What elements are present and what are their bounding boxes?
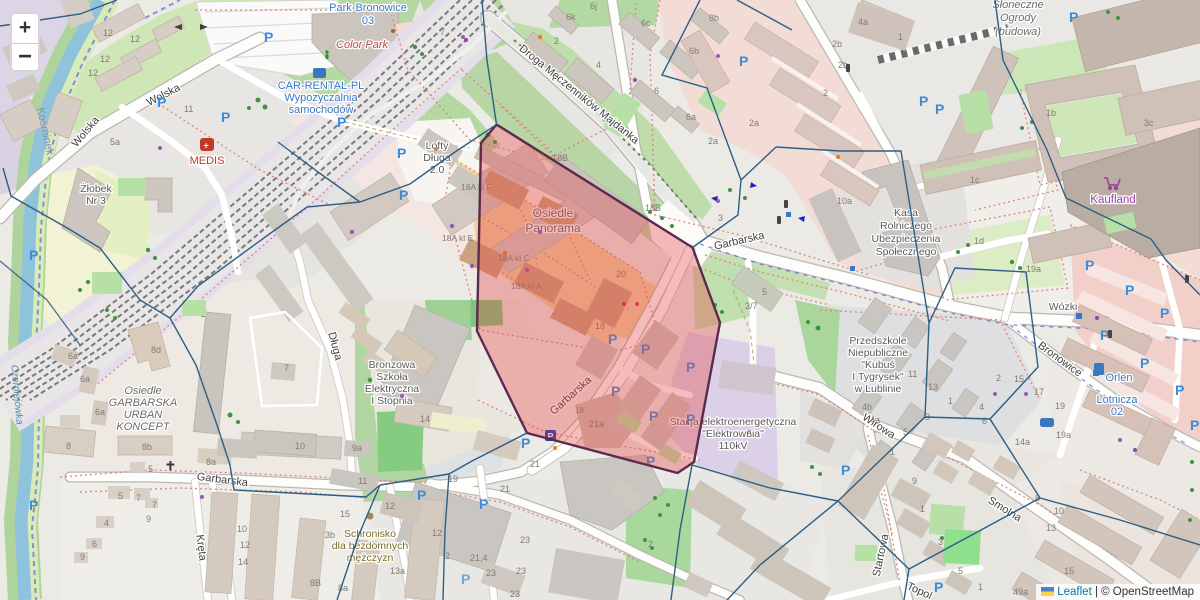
svg-text:3/7: 3/7 — [745, 301, 758, 311]
svg-text:23: 23 — [486, 568, 496, 578]
svg-text:21,4: 21,4 — [470, 553, 488, 563]
svg-text:7: 7 — [152, 500, 157, 510]
svg-text:2.0: 2.0 — [430, 164, 445, 176]
svg-text:7: 7 — [440, 27, 445, 37]
svg-text:18B: 18B — [645, 203, 661, 213]
svg-text:Lotnicza: Lotnicza — [1097, 394, 1139, 406]
svg-text:Słoneczne: Słoneczne — [992, 0, 1043, 11]
svg-text:14: 14 — [238, 557, 248, 567]
svg-text:3b: 3b — [325, 530, 335, 540]
svg-text:2: 2 — [823, 88, 828, 98]
svg-text:21: 21 — [500, 484, 510, 494]
svg-text:19a: 19a — [1026, 264, 1041, 274]
svg-text:10: 10 — [295, 441, 305, 451]
svg-text:5: 5 — [118, 491, 123, 501]
svg-text:1: 1 — [948, 396, 953, 406]
svg-text:1b: 1b — [1046, 108, 1056, 118]
svg-text:110kV: 110kV — [719, 440, 748, 452]
svg-text:10a: 10a — [837, 196, 852, 206]
svg-text:6k: 6k — [566, 12, 576, 22]
svg-text:6b: 6b — [689, 46, 699, 56]
svg-text:6a: 6a — [95, 407, 105, 417]
svg-text:21: 21 — [530, 459, 540, 469]
svg-text:"Elektrownia": "Elektrownia" — [702, 428, 764, 440]
svg-text:18A kl E: 18A kl E — [442, 233, 474, 243]
svg-text:12: 12 — [100, 54, 110, 64]
svg-text:P: P — [479, 496, 488, 512]
svg-text:03: 03 — [362, 15, 374, 27]
svg-text:P: P — [1100, 327, 1109, 343]
svg-text:4b: 4b — [862, 402, 872, 412]
svg-text:12: 12 — [432, 528, 442, 538]
svg-text:Niepubliczne: Niepubliczne — [848, 347, 908, 359]
svg-text:10: 10 — [1054, 506, 1064, 516]
svg-text:Kasa: Kasa — [894, 207, 918, 219]
svg-text:P: P — [221, 109, 230, 125]
svg-text:19a: 19a — [1056, 430, 1071, 440]
svg-text:I Stopnia: I Stopnia — [371, 395, 413, 407]
svg-text:P: P — [919, 93, 928, 109]
svg-text:2b: 2b — [832, 39, 842, 49]
svg-text:1: 1 — [978, 582, 983, 592]
svg-text:GARBARSKA: GARBARSKA — [109, 397, 177, 409]
svg-text:Ubezpieczenia: Ubezpieczenia — [872, 233, 941, 245]
svg-text:P: P — [1175, 382, 1184, 398]
svg-text:6j: 6j — [590, 1, 597, 11]
svg-text:15: 15 — [1014, 374, 1024, 384]
svg-text:3c: 3c — [1144, 118, 1154, 128]
svg-text:12: 12 — [130, 34, 140, 44]
svg-text:Park-Bronowice: Park-Bronowice — [329, 2, 407, 14]
svg-text:6a: 6a — [686, 112, 696, 122]
svg-text:5: 5 — [958, 566, 963, 576]
svg-text:02: 02 — [1111, 406, 1123, 418]
svg-text:6: 6 — [654, 86, 659, 96]
svg-text:9a: 9a — [352, 443, 362, 453]
svg-text:7: 7 — [284, 363, 289, 373]
svg-text:Rolniczego: Rolniczego — [880, 220, 932, 232]
svg-text:1d: 1d — [974, 236, 984, 246]
svg-text:P: P — [1069, 9, 1078, 25]
svg-text:14a: 14a — [1015, 437, 1030, 447]
svg-text:P: P — [397, 145, 406, 161]
svg-text:P: P — [521, 435, 530, 451]
svg-text:Społecznego: Społecznego — [876, 246, 937, 258]
svg-text:9: 9 — [80, 552, 85, 562]
svg-text:P: P — [1190, 417, 1199, 433]
svg-text:Szkoła: Szkoła — [376, 371, 408, 383]
svg-text:Schronisko: Schronisko — [344, 528, 396, 540]
svg-text:12: 12 — [103, 28, 113, 38]
svg-text:17: 17 — [1034, 387, 1044, 397]
svg-text:Nr 3: Nr 3 — [86, 195, 106, 207]
svg-text:2: 2 — [445, 551, 450, 561]
svg-text:13: 13 — [1046, 523, 1056, 533]
svg-text:Color Park: Color Park — [336, 39, 388, 51]
svg-text:19: 19 — [1055, 401, 1065, 411]
svg-text:1c: 1c — [970, 175, 980, 185]
svg-text:P: P — [461, 571, 470, 587]
svg-text:P: P — [157, 94, 166, 110]
svg-text:Orlen: Orlen — [1106, 372, 1133, 384]
svg-text:CAR-RENTAL-PL: CAR-RENTAL-PL — [278, 80, 365, 92]
svg-text:8d: 8d — [151, 345, 161, 355]
svg-text:8: 8 — [66, 441, 71, 451]
svg-text:P: P — [841, 462, 850, 478]
svg-text:6a: 6a — [68, 351, 78, 361]
svg-text:2a: 2a — [708, 136, 718, 146]
svg-text:14: 14 — [420, 414, 430, 424]
svg-text:P: P — [1085, 257, 1094, 273]
svg-text:P: P — [934, 579, 943, 595]
svg-text:1: 1 — [920, 504, 925, 514]
svg-text:6c: 6c — [641, 18, 651, 28]
svg-text:P: P — [399, 187, 408, 203]
svg-text:+: + — [204, 141, 209, 151]
svg-text:1: 1 — [898, 32, 903, 42]
svg-text:8b: 8b — [709, 13, 719, 23]
svg-text:6: 6 — [982, 416, 987, 426]
svg-text:P: P — [739, 53, 748, 69]
svg-text:9: 9 — [912, 476, 917, 486]
svg-text:7: 7 — [136, 493, 141, 503]
svg-text:11: 11 — [908, 369, 917, 379]
svg-text:P: P — [1160, 305, 1169, 321]
svg-text:Wózki: Wózki — [1049, 301, 1078, 313]
svg-text:23: 23 — [510, 589, 520, 599]
svg-text:KONCEPT: KONCEPT — [116, 421, 170, 433]
svg-text:Elektryczna: Elektryczna — [365, 383, 419, 395]
svg-text:4: 4 — [979, 402, 984, 412]
svg-text:8a: 8a — [206, 457, 216, 467]
svg-text:2: 2 — [648, 539, 653, 549]
svg-text:Bronzowa: Bronzowa — [369, 359, 416, 371]
svg-text:8B: 8B — [310, 578, 321, 588]
svg-text:12: 12 — [88, 68, 98, 78]
svg-text:2: 2 — [554, 36, 559, 46]
svg-text:Osiedle: Osiedle — [124, 385, 161, 397]
svg-text:P: P — [29, 247, 38, 263]
svg-text:9: 9 — [146, 514, 151, 524]
svg-text:Przedszkole: Przedszkole — [849, 335, 906, 347]
svg-text:4: 4 — [596, 60, 601, 70]
svg-text:10: 10 — [237, 524, 247, 534]
svg-text:w Lublinie: w Lublinie — [854, 383, 902, 395]
svg-text:15: 15 — [340, 509, 350, 519]
svg-text:dla bezdomnych: dla bezdomnych — [332, 540, 409, 552]
svg-text:12: 12 — [240, 540, 250, 550]
svg-text:13a: 13a — [390, 566, 405, 576]
svg-text:6a: 6a — [80, 374, 90, 384]
svg-text:6: 6 — [92, 539, 97, 549]
svg-text:Wypozyczalnia: Wypozyczalnia — [284, 92, 358, 104]
svg-text:5: 5 — [747, 429, 752, 439]
svg-text:2: 2 — [996, 373, 1001, 383]
svg-text:3: 3 — [938, 537, 943, 547]
svg-text:mężczyzn: mężczyzn — [347, 552, 394, 564]
svg-text:13: 13 — [928, 382, 938, 392]
svg-text:Kaufland: Kaufland — [1090, 194, 1135, 206]
svg-text:11: 11 — [184, 104, 193, 114]
svg-text:49a: 49a — [1013, 587, 1028, 597]
svg-text:5a: 5a — [110, 137, 120, 147]
svg-text:11: 11 — [358, 476, 367, 486]
svg-text:5: 5 — [762, 287, 767, 297]
svg-text:4a: 4a — [870, 415, 880, 425]
svg-text:P: P — [29, 497, 38, 513]
svg-text:8b: 8b — [142, 442, 152, 452]
svg-text:URBAN: URBAN — [124, 409, 163, 421]
svg-text:23: 23 — [516, 566, 526, 576]
svg-text:4a: 4a — [858, 17, 868, 27]
svg-text:5: 5 — [148, 464, 153, 474]
svg-text:2a: 2a — [749, 118, 759, 128]
svg-text:MEDIS: MEDIS — [190, 155, 225, 167]
svg-text:P: P — [337, 114, 346, 130]
svg-text:4: 4 — [104, 518, 109, 528]
svg-text:Żłobek: Żłobek — [80, 182, 112, 195]
svg-text:P: P — [1140, 355, 1149, 371]
svg-text:12: 12 — [385, 501, 395, 511]
svg-text:"Kubuś: "Kubuś — [861, 359, 895, 371]
svg-text:P: P — [264, 29, 273, 45]
svg-text:P: P — [417, 487, 426, 503]
svg-text:P: P — [1125, 282, 1134, 298]
svg-text:(budowa): (budowa) — [995, 26, 1041, 38]
svg-text:Ogrody: Ogrody — [1000, 12, 1038, 24]
svg-text:P: P — [935, 101, 944, 117]
svg-text:15: 15 — [1064, 566, 1074, 576]
svg-text:I Tygrysek": I Tygrysek" — [852, 371, 904, 383]
svg-text:23: 23 — [520, 535, 530, 545]
svg-text:3: 3 — [718, 213, 723, 223]
